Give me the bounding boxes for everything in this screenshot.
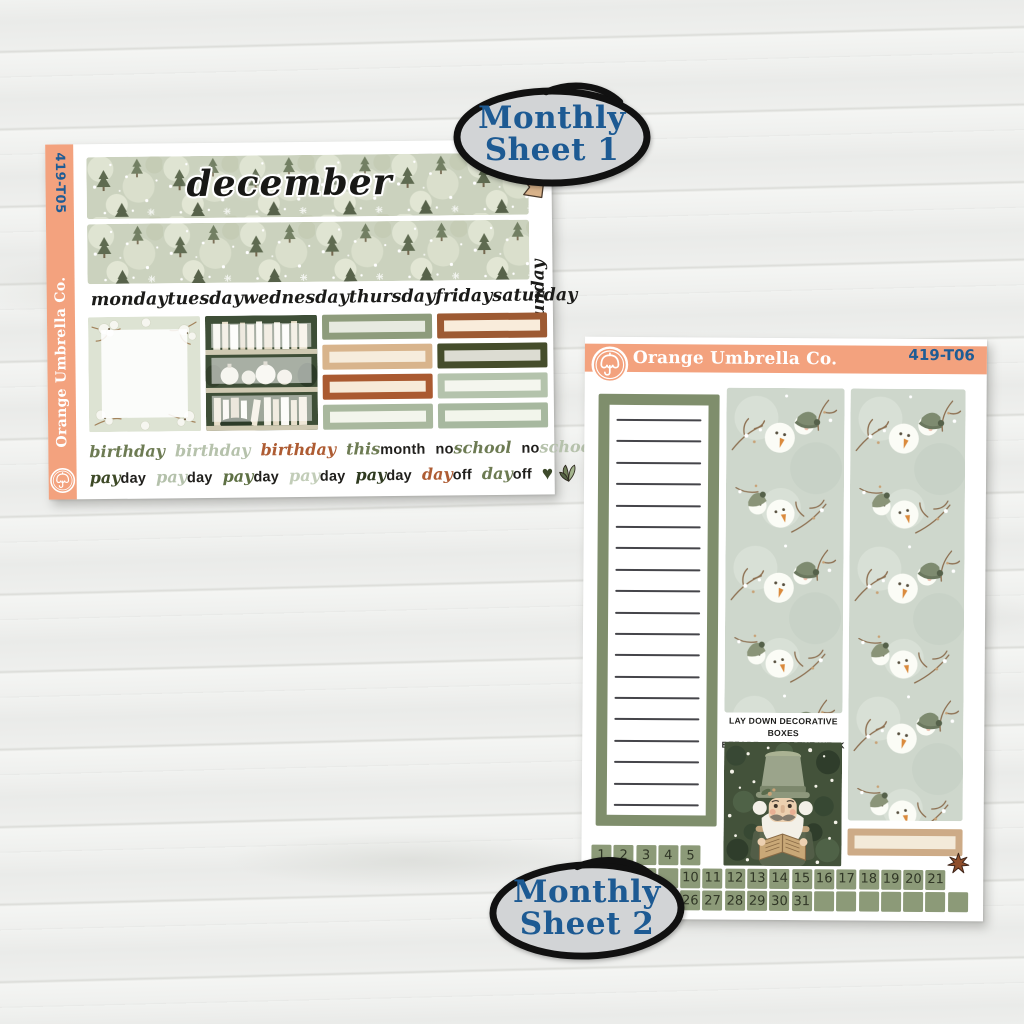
umbrella-logo-icon [50,467,76,493]
wood-background: 419-T05 Orange Umbrella Co. december [0,0,1024,1024]
event-label-part: day [253,469,279,485]
blank-date-square [948,892,968,912]
washi-strip-trees [87,220,530,285]
notes-line [616,483,701,486]
event-label-part: day [187,470,213,486]
weekday-label: wednesday [243,287,349,308]
quarter-boxes-column-1 [322,314,433,430]
date-square: 30 [769,891,789,911]
notes-line [615,590,700,593]
event-label-part: no [521,440,539,456]
notes-line [616,462,701,465]
nutcracker-sticker [723,742,842,867]
blank-date-square [859,892,879,912]
event-label-sticker: payday [222,466,279,487]
event-label-sticker: payday [289,466,346,487]
date-square: 27 [703,890,723,910]
event-label-part: month [380,442,425,458]
event-label-sticker: thismonth [346,439,426,460]
event-label-sticker: payday [355,465,412,486]
event-label-part: day [320,469,346,485]
event-label-part: pay [90,468,121,487]
notes-line [615,569,700,572]
event-label-sticker: birthday [89,441,165,462]
star-icon [947,852,969,874]
event-label-part: off [453,467,472,483]
notes-line [614,718,699,721]
event-label-part: this [346,439,380,458]
date-square: 31 [792,891,812,911]
notes-line [616,440,701,443]
date-square: 29 [747,891,767,911]
event-label-part: pay [289,466,320,485]
date-square: 16 [814,869,834,889]
quarter-box-sticker [438,372,548,398]
event-label-part: day [482,464,513,483]
event-label-part: day [422,464,453,483]
weekday-label: friday [435,286,492,307]
quarter-box-sticker [323,374,433,400]
event-label-part: no [435,441,453,457]
date-square: 20 [903,869,923,889]
sheet2-brand-header: Orange Umbrella Co. 419-T06 [585,344,987,375]
notes-line [616,504,701,507]
blank-date-square [903,892,923,912]
event-label-part: day [386,468,412,484]
bookshelf-box-sticker [205,315,318,431]
cotton-pattern-box-sticker [88,316,201,432]
blank-date-square [881,892,901,912]
badge2-line2: Sheet 2 [520,909,655,941]
umbrella-logo-icon [591,346,629,384]
event-label-sticker: payday [156,467,213,488]
snowman-washi-strip [724,388,844,714]
date-square: 28 [725,891,745,911]
date-square: 11 [703,868,723,888]
event-label-part: pay [355,465,386,484]
notes-line [615,676,700,679]
badge2-line1: Monthly [513,877,661,909]
badge-monthly-sheet-1: Monthly Sheet 1 [450,82,654,188]
date-square: 17 [836,869,856,889]
date-square: 18 [859,869,879,889]
sheet1-product-code: 419-T05 [45,152,74,262]
date-square: 21 [926,869,946,889]
sticker-sheet-1: 419-T05 Orange Umbrella Co. december [45,139,555,499]
quarter-box-sticker [437,312,547,338]
event-label-part: off [513,467,532,483]
quarter-box-tan-sticker [847,828,962,856]
badge-text: Monthly Sheet 2 [486,856,688,962]
quarter-boxes-column-2 [437,312,548,428]
quarter-box-sticker [323,404,433,430]
event-label-part: school [454,438,512,458]
heart-icon: ♥ [542,464,553,483]
weekday-label: thursday [349,287,436,308]
date-square: 12 [725,868,745,888]
badge-text: Monthly Sheet 1 [450,82,654,188]
date-square: 15 [792,869,812,889]
notes-line [615,697,700,700]
blank-date-square [814,891,834,911]
quarter-box-sticker [438,402,548,428]
weekday-label: saturday [492,285,577,306]
quarter-box-sticker [322,314,432,340]
notes-line [615,654,700,657]
notes-line [614,740,699,743]
badge1-line2: Sheet 1 [485,135,620,167]
date-square: 13 [747,868,767,888]
notes-line [614,782,699,785]
event-label-sticker: birthday [175,441,251,462]
badge1-line1: Monthly [478,103,626,135]
event-label-part: birthday [260,440,336,460]
badge-monthly-sheet-2: Monthly Sheet 2 [486,856,688,962]
notes-line [614,761,699,764]
date-square: 14 [770,868,790,888]
event-labels-row-2: paydaypaydaypaydaypaydaypaydaydayoffdayo… [90,461,553,490]
event-label-part: pay [222,466,253,485]
weekday-labels-row: mondaytuesdaywednesdaythursdayfridaysatu… [91,284,531,313]
blank-date-square [925,892,945,912]
leaf-fan-icon [558,464,578,482]
notes-line [616,547,701,550]
event-labels-row-1: birthdaybirthdaybirthdaythismonthnoschoo… [89,435,552,464]
weekday-label: tuesday [167,289,243,310]
sheet2-brand-name: Orange Umbrella Co. [633,344,838,373]
snowman-washi-strip [848,388,966,821]
notes-line [614,804,699,807]
blank-date-square [836,891,856,911]
weekday-label: monday [91,289,168,310]
event-label-part: day [120,471,146,487]
event-label-part: pay [156,467,187,486]
event-label-sticker: dayoff [482,464,532,485]
event-label-sticker: payday [90,468,147,489]
notes-box-sticker [596,394,720,827]
notes-line [616,526,701,529]
event-label-part: birthday [175,441,251,461]
notes-line [615,611,700,614]
notes-line [616,419,701,422]
event-label-sticker: noschool [435,438,511,459]
event-label-sticker: birthday [260,440,336,461]
sticker-sheet-2: Orange Umbrella Co. 419-T06 LAY [581,337,987,922]
sheet1-brand-sidebar: 419-T05 Orange Umbrella Co. [45,144,77,499]
event-label-part: birthday [89,441,165,461]
quarter-box-sticker [322,344,432,370]
sheet2-product-code: 419-T06 [908,346,975,374]
instruction-line-1: LAY DOWN DECORATIVE BOXES [718,715,848,740]
date-square: 19 [881,869,901,889]
notes-line [615,633,700,636]
quarter-box-sticker [437,342,547,368]
sheet1-brand-name: Orange Umbrella Co. [46,267,76,457]
event-label-sticker: dayoff [422,464,472,485]
